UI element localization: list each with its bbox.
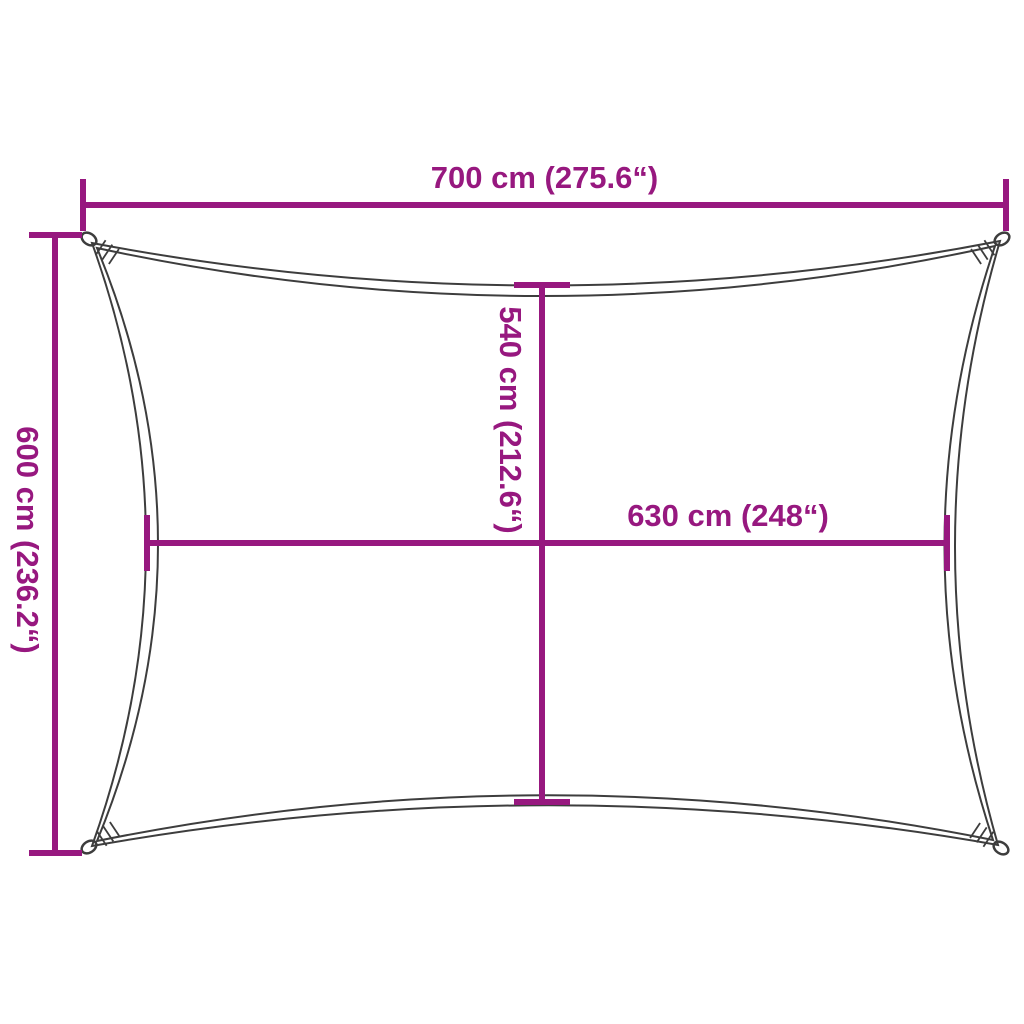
dimension-line-left bbox=[52, 235, 58, 853]
dimension-tick-left-top bbox=[29, 232, 82, 238]
dimension-line-top bbox=[83, 202, 1006, 208]
dimension-label-inner-width: 630 cm (248“) bbox=[528, 498, 928, 534]
dimension-tick-middle-horizontal-left bbox=[144, 515, 150, 571]
dimension-line-middle-horizontal bbox=[147, 540, 947, 546]
dimension-diagram: 700 cm (275.6“) 600 cm (236.2“) 540 cm (… bbox=[0, 0, 1024, 1024]
dimension-tick-middle-horizontal-right bbox=[944, 515, 950, 571]
dimension-tick-left-bottom bbox=[29, 850, 82, 856]
dimension-label-width: 700 cm (275.6“) bbox=[83, 160, 1006, 196]
dimension-tick-middle-vertical-bottom bbox=[514, 799, 570, 805]
dimension-label-height: 600 cm (236.2“) bbox=[9, 410, 45, 670]
dimension-tick-middle-vertical-top bbox=[514, 282, 570, 288]
dimension-label-inner-height: 540 cm (212.6“) bbox=[492, 290, 528, 550]
